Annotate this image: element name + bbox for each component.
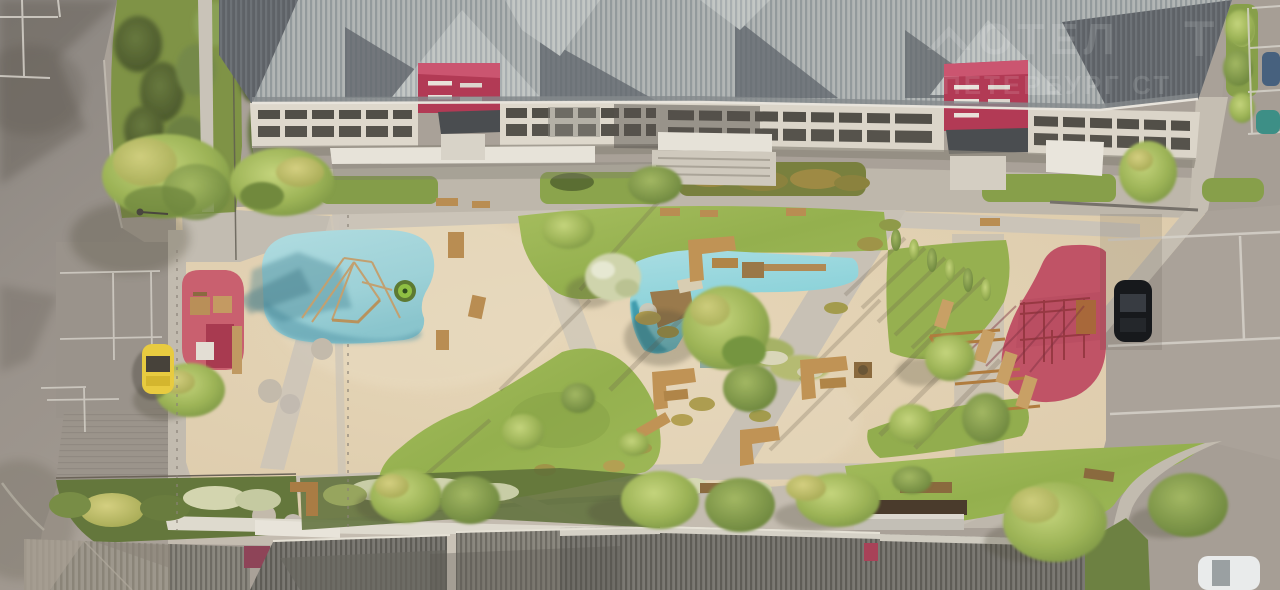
svg-text:Т: Т [1184, 11, 1215, 67]
svg-text:ОТЕЛ: ОТЕЛ [978, 15, 1119, 64]
svg-text:ПЕТЕРБУРГ СТ: ПЕТЕРБУРГ СТ [942, 70, 1172, 100]
